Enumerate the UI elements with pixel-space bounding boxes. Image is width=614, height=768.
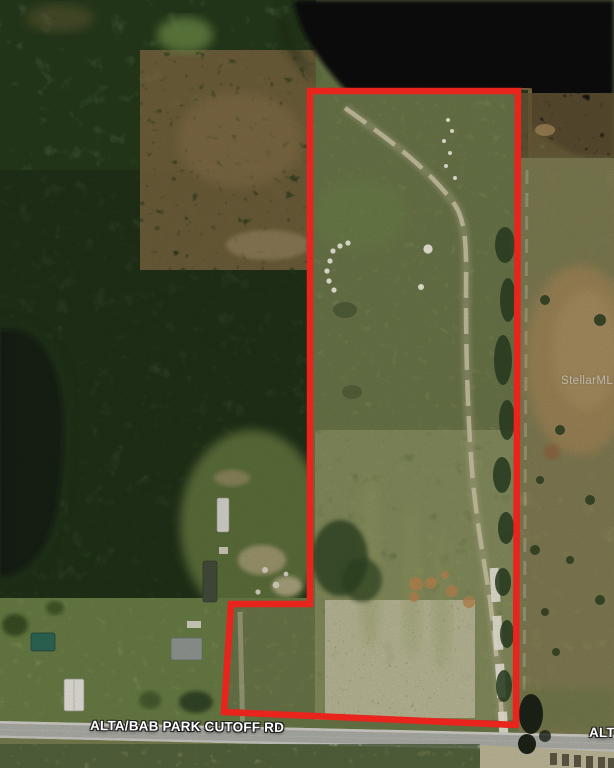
aerial-listing-photo: ALTA/BAB PARK CUTOFF RD ALT StellarMLS: [0, 0, 614, 768]
satellite-imagery: [0, 0, 614, 768]
road-name-label: ALTA/BAB PARK CUTOFF RD: [90, 718, 284, 735]
mls-watermark: StellarMLS: [561, 375, 614, 387]
road-name-label-partial: ALT: [589, 725, 614, 740]
